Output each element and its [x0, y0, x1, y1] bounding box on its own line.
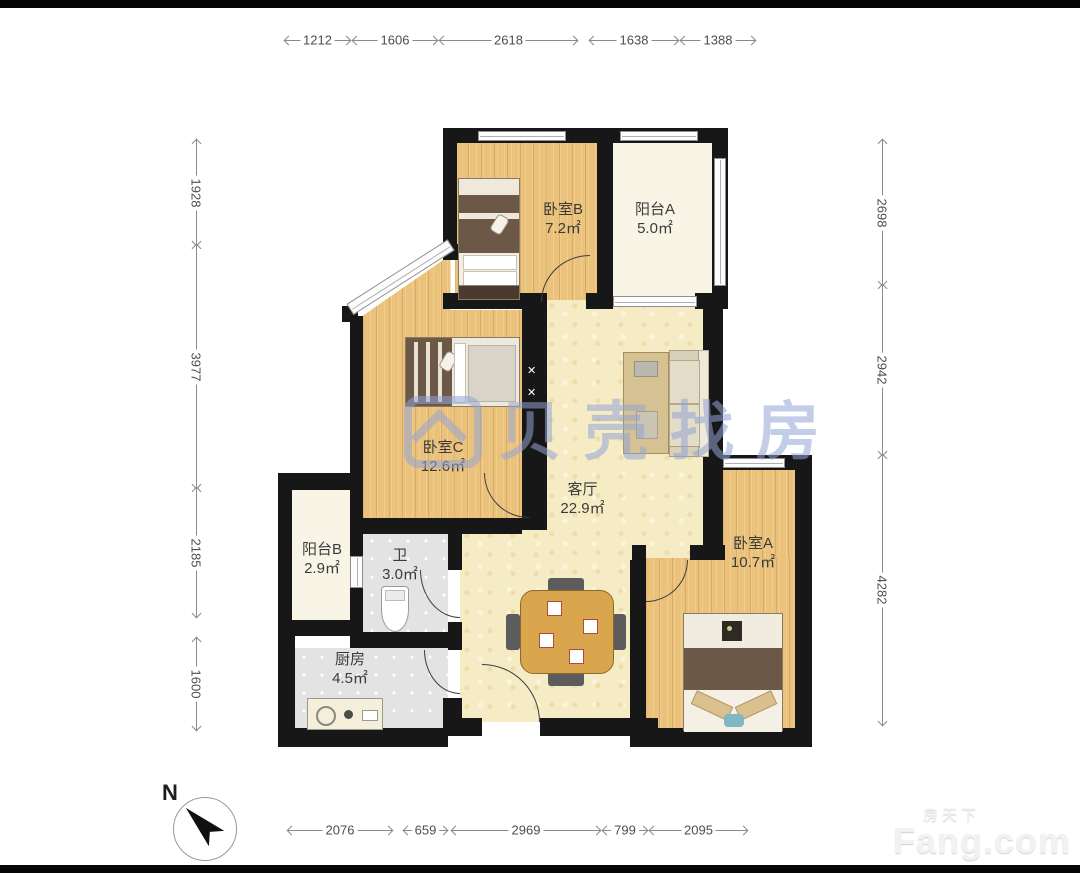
room-area: 2.9㎡	[278, 559, 366, 578]
dimension-right: 2942	[874, 285, 890, 455]
window	[478, 131, 566, 141]
compass-ring	[173, 797, 237, 861]
bed-bedroom-a	[683, 613, 783, 731]
wall	[540, 718, 658, 736]
room-area: 3.0㎡	[362, 565, 438, 584]
dimension-value: 659	[412, 823, 440, 838]
dimension-bottom: 2095	[650, 822, 747, 838]
dimension-left: 1928	[188, 140, 204, 245]
dimension-top: 1212	[285, 32, 350, 48]
dimension-right: 4282	[874, 455, 890, 725]
bottom-black-bar	[0, 865, 1080, 873]
dimension-top: 2618	[440, 32, 577, 48]
watermark-text: 贝壳找房	[498, 400, 842, 464]
room-name: 阳台A	[610, 200, 700, 219]
dimension-bottom: 2969	[452, 822, 600, 838]
room-name: 卧室B	[518, 200, 608, 219]
dimension-left: 3977	[188, 245, 204, 488]
wall	[632, 545, 646, 560]
dimension-value: 2698	[875, 195, 890, 230]
dimension-value: 2942	[875, 353, 890, 388]
bed-bedroom-b	[458, 178, 520, 300]
dimension-left: 1600	[188, 638, 204, 730]
room-area: 5.0㎡	[610, 219, 700, 238]
dimension-right: 2698	[874, 140, 890, 285]
dimension-value: 2076	[323, 823, 358, 838]
room-label-balcony-a: 阳台A 5.0㎡	[610, 200, 700, 238]
room-label-kitchen: 厨房 4.5㎡	[310, 650, 390, 688]
dimension-top: 1638	[590, 32, 678, 48]
room-name: 卧室A	[708, 534, 798, 553]
room-area: 4.5㎡	[310, 669, 390, 688]
wall	[448, 622, 462, 650]
dimension-top: 1388	[681, 32, 755, 48]
wall	[350, 632, 462, 648]
dimension-value: 1606	[378, 33, 413, 48]
dimension-top: 1606	[353, 32, 437, 48]
room-label-bedroom-a: 卧室A 10.7㎡	[708, 534, 798, 572]
dimension-value: 2969	[509, 823, 544, 838]
room-area: 7.2㎡	[518, 219, 608, 238]
room-name: 客厅	[535, 480, 630, 499]
room-label-balcony-b: 阳台B 2.9㎡	[278, 540, 366, 578]
dining-table-set	[506, 578, 626, 686]
window	[714, 158, 726, 286]
dimension-bottom: 659	[404, 822, 447, 838]
dimension-value: 1928	[189, 175, 204, 210]
room-label-living: 客厅 22.9㎡	[535, 480, 630, 518]
wall	[630, 560, 646, 730]
sliding-door	[613, 296, 697, 307]
fang-brand-watermark: 房天下 Fang.com	[893, 804, 1071, 857]
room-name: 卫	[362, 546, 438, 565]
north-label: N	[162, 780, 178, 806]
toilet	[381, 586, 409, 632]
dimension-value: 1388	[701, 33, 736, 48]
dimension-value: 3977	[189, 349, 204, 384]
room-label-bedroom-b: 卧室B 7.2㎡	[518, 200, 608, 238]
wall	[448, 532, 462, 570]
wall	[363, 518, 522, 534]
dimension-value: 2618	[491, 33, 526, 48]
dimension-value: 2185	[189, 535, 204, 570]
room-name: 厨房	[310, 650, 390, 669]
beike-shell-logo-icon	[404, 396, 482, 468]
room-name: 阳台B	[278, 540, 366, 559]
floorplan-image: ✕ ✕	[0, 0, 1080, 873]
beike-watermark: 贝壳找房	[404, 396, 842, 468]
room-label-bathroom: 卫 3.0㎡	[362, 546, 438, 584]
wall	[586, 293, 613, 309]
shaft-hatch-icon: ✕	[527, 366, 536, 377]
dimension-value: 799	[611, 823, 639, 838]
north-arrow-icon	[182, 804, 230, 852]
room-area: 10.7㎡	[708, 553, 798, 572]
kitchen-counter	[307, 698, 383, 730]
dimension-bottom: 799	[603, 822, 647, 838]
top-black-bar	[0, 0, 1080, 8]
dimension-value: 1600	[189, 667, 204, 702]
wall	[795, 455, 812, 747]
dimension-value: 2095	[681, 823, 716, 838]
window	[620, 131, 698, 141]
room-area: 22.9㎡	[535, 499, 630, 518]
dimension-value: 4282	[875, 573, 890, 608]
dimension-bottom: 2076	[288, 822, 392, 838]
wall	[278, 728, 448, 747]
compass: N	[160, 780, 250, 870]
wall	[448, 698, 462, 728]
wall	[278, 636, 295, 747]
dimension-value: 1638	[617, 33, 652, 48]
dimension-value: 1212	[300, 33, 335, 48]
fang-logo-text: Fang.com	[893, 825, 1071, 857]
dimension-left: 2185	[188, 488, 204, 617]
